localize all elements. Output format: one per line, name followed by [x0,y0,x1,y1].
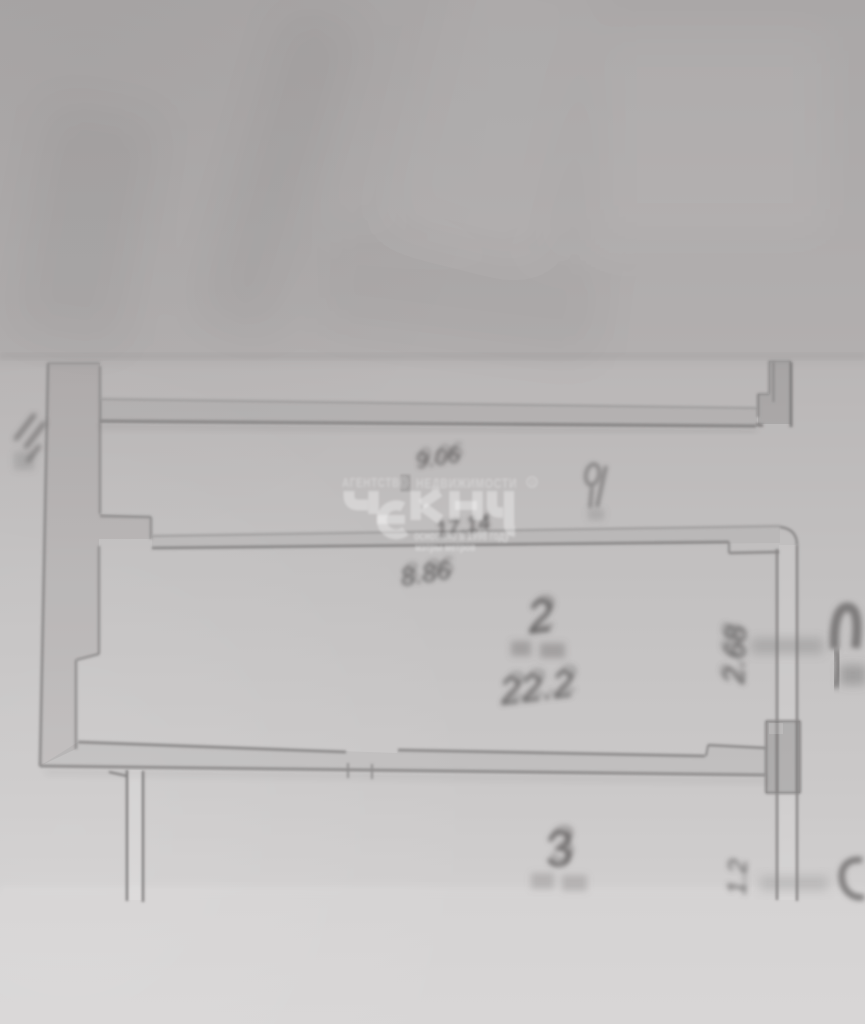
svg-text:1.2: 1.2 [721,858,752,896]
svg-text:2.68: 2.68 [714,622,749,683]
svg-text:АГЕНТСТВО: АГЕНТСТВО [342,477,408,491]
svg-text:мэтры метров: мэтры метров [415,542,475,555]
svg-text:НЕДВИЖИМОСТИ: НЕДВИЖИМОСТИ [416,476,517,492]
svg-text:R: R [530,479,536,488]
